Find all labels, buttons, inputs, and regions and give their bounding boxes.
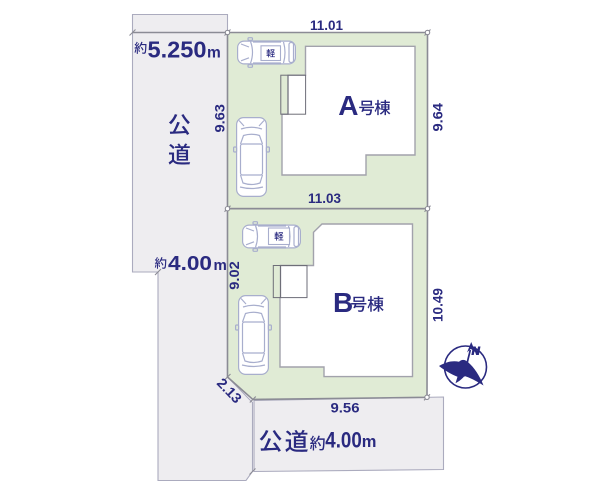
svg-text:4.00: 4.00 — [168, 252, 212, 275]
svg-text:4.00: 4.00 — [325, 427, 362, 452]
svg-text:11.01: 11.01 — [310, 17, 343, 33]
svg-text:A: A — [338, 90, 358, 121]
svg-text:B: B — [333, 287, 353, 318]
svg-text:9.56: 9.56 — [331, 400, 360, 416]
svg-text:5.250: 5.250 — [148, 36, 207, 62]
svg-text:N: N — [472, 346, 481, 358]
svg-text:10.49: 10.49 — [429, 288, 445, 322]
svg-text:11.03: 11.03 — [308, 190, 341, 206]
svg-text:9.64: 9.64 — [429, 103, 445, 132]
svg-text:9.63: 9.63 — [211, 104, 227, 133]
svg-text:m: m — [362, 433, 377, 451]
svg-text:m: m — [207, 44, 221, 61]
svg-text:9.02: 9.02 — [226, 261, 242, 290]
